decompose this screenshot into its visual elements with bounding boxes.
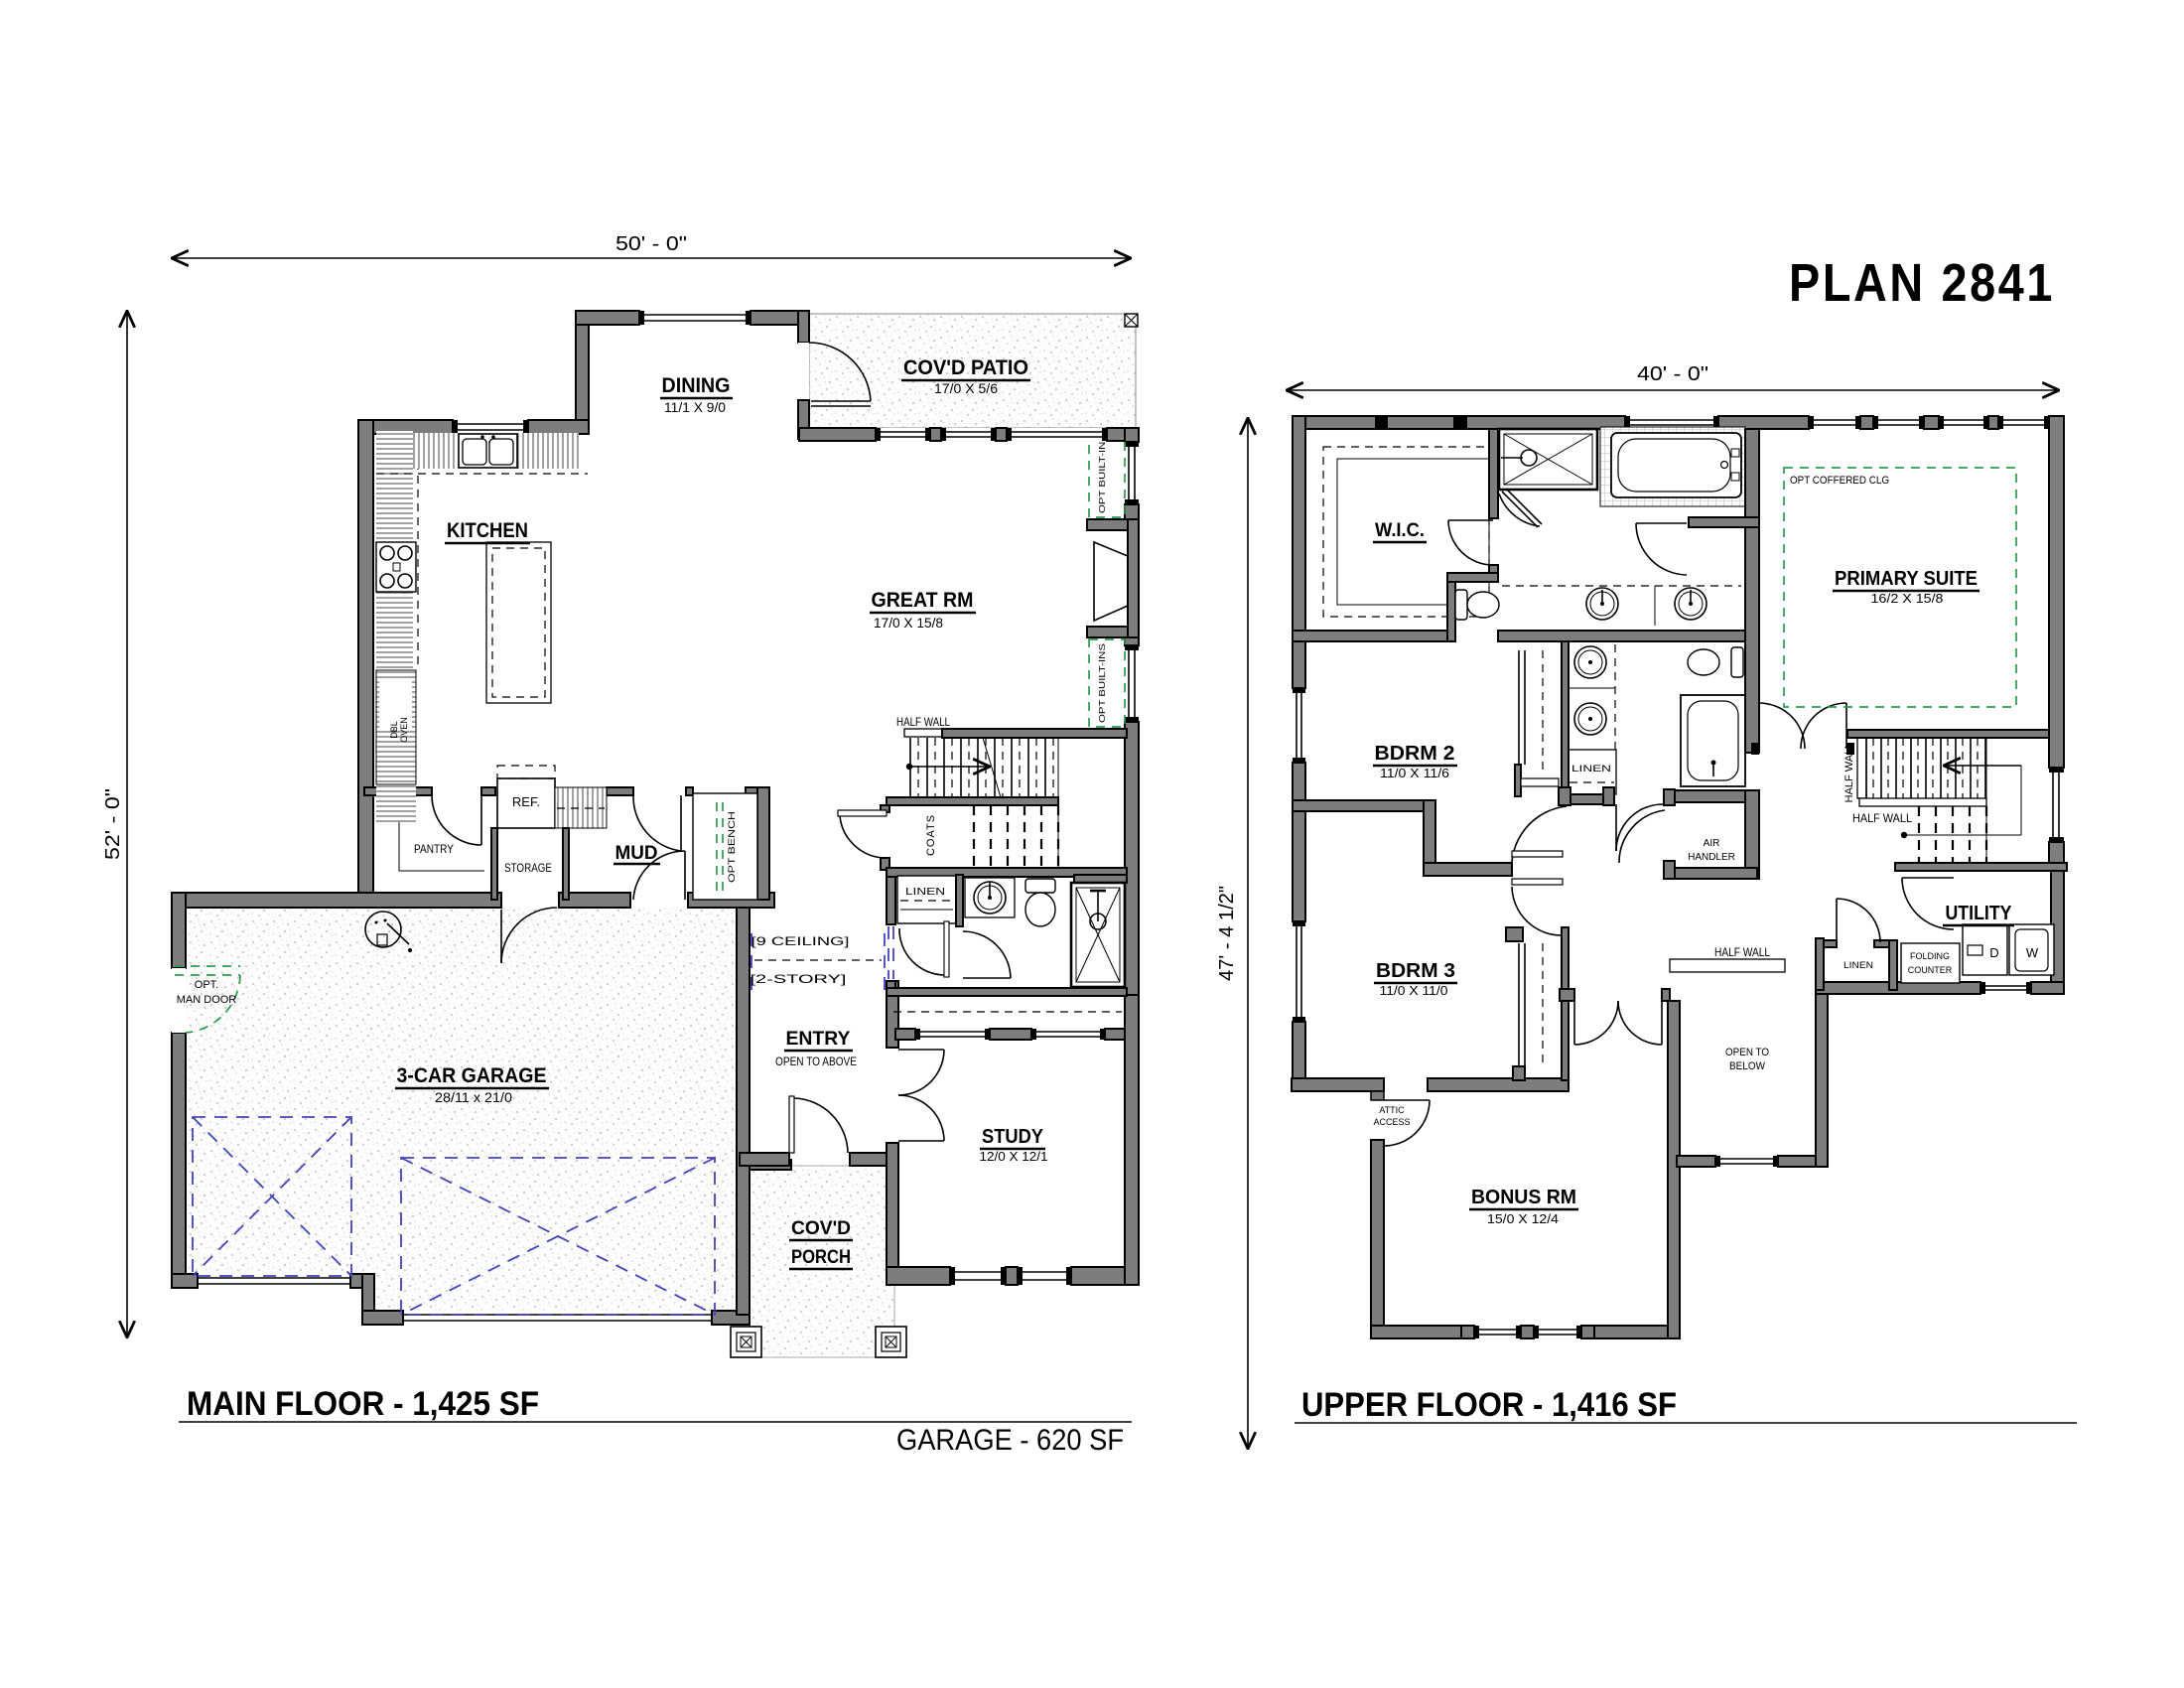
svg-text:PANTRY: PANTRY (414, 842, 454, 856)
svg-text:REF.: REF. (512, 794, 540, 809)
svg-text:OPEN TO: OPEN TO (1725, 1047, 1769, 1058)
svg-text:BELOW: BELOW (1729, 1060, 1766, 1072)
svg-text:47' - 4 1/2": 47' - 4 1/2" (1216, 886, 1238, 981)
svg-text:[9 CEILING]: [9 CEILING] (751, 934, 850, 948)
svg-text:LINEN: LINEN (905, 887, 945, 898)
svg-text:MAN DOOR: MAN DOOR (177, 994, 237, 1006)
svg-text:OPT COFFERED CLG: OPT COFFERED CLG (1790, 475, 1889, 487)
svg-text:UPPER FLOOR - 1,416 SF: UPPER FLOOR - 1,416 SF (1301, 1386, 1677, 1424)
svg-text:W: W (2026, 945, 2039, 960)
svg-text:PORCH: PORCH (791, 1247, 851, 1268)
svg-text:OVEN: OVEN (399, 717, 409, 743)
svg-text:OPT BENCH: OPT BENCH (727, 811, 737, 883)
svg-text:OPT BUILT-INS: OPT BUILT-INS (1097, 643, 1107, 723)
svg-text:FOLDING: FOLDING (1910, 951, 1950, 961)
svg-text:MAIN FLOOR - 1,425 SF: MAIN FLOOR - 1,425 SF (187, 1385, 539, 1423)
svg-text:LINEN: LINEN (1843, 960, 1873, 970)
svg-text:17/0 X 15/8: 17/0 X 15/8 (874, 615, 943, 631)
svg-text:11/0 X 11/6: 11/0 X 11/6 (1380, 766, 1449, 780)
svg-text:16/2 X 15/8: 16/2 X 15/8 (1871, 591, 1944, 606)
svg-text:W.I.C.: W.I.C. (1375, 520, 1425, 541)
svg-text:COV'D: COV'D (791, 1218, 851, 1239)
svg-text:COUNTER: COUNTER (1908, 965, 1953, 975)
svg-text:[2-STORY]: [2-STORY] (751, 972, 847, 986)
svg-text:11/0 X 11/0: 11/0 X 11/0 (1380, 983, 1448, 998)
svg-text:UTILITY: UTILITY (1946, 903, 2013, 924)
svg-text:GARAGE - 620 SF: GARAGE - 620 SF (896, 1424, 1124, 1457)
svg-text:LINEN: LINEN (1571, 764, 1611, 774)
svg-text:ENTRY: ENTRY (786, 1029, 851, 1050)
svg-text:GREAT RM: GREAT RM (872, 589, 974, 612)
svg-text:15/0 X 12/4: 15/0 X 12/4 (1487, 1211, 1559, 1226)
svg-text:17/0 X 5/6: 17/0 X 5/6 (934, 380, 998, 396)
svg-text:40' - 0": 40' - 0" (1637, 363, 1708, 385)
svg-text:MUD: MUD (615, 843, 658, 864)
svg-text:COV'D PATIO: COV'D PATIO (903, 356, 1028, 379)
svg-text:DBL: DBL (389, 721, 399, 739)
svg-text:BDRM 2: BDRM 2 (1375, 743, 1455, 765)
svg-text:OPT BUILT-INS: OPT BUILT-INS (1097, 434, 1107, 513)
svg-text:3-CAR GARAGE: 3-CAR GARAGE (397, 1064, 547, 1087)
svg-text:50' - 0": 50' - 0" (615, 233, 687, 255)
svg-text:HANDLER: HANDLER (1688, 852, 1735, 863)
svg-text:COATS: COATS (925, 814, 937, 856)
svg-text:11/1 X 9/0: 11/1 X 9/0 (664, 399, 726, 415)
svg-text:HALF WALL: HALF WALL (1852, 811, 1912, 825)
svg-text:OPEN TO ABOVE: OPEN TO ABOVE (775, 1055, 857, 1068)
svg-text:AIR: AIR (1704, 838, 1720, 849)
svg-text:BONUS RM: BONUS RM (1471, 1187, 1576, 1208)
svg-text:STORAGE: STORAGE (504, 861, 552, 875)
svg-text:STUDY: STUDY (982, 1126, 1044, 1148)
svg-text:52' - 0": 52' - 0" (102, 788, 124, 860)
svg-text:ATTIC: ATTIC (1379, 1105, 1405, 1115)
svg-text:KITCHEN: KITCHEN (447, 519, 528, 542)
svg-text:D: D (1989, 945, 1998, 960)
svg-text:BDRM 3: BDRM 3 (1376, 960, 1455, 982)
svg-text:HALF WALL: HALF WALL (896, 715, 950, 729)
svg-text:28/11 x 21/0: 28/11 x 21/0 (435, 1089, 512, 1105)
svg-text:DINING: DINING (662, 374, 731, 397)
svg-text:ACCESS: ACCESS (1373, 1117, 1410, 1127)
svg-text:PLAN 2841: PLAN 2841 (1789, 253, 2055, 313)
svg-text:12/0 X 12/1: 12/0 X 12/1 (980, 1149, 1048, 1164)
svg-text:HALF WALL: HALF WALL (1714, 945, 1770, 959)
svg-text:OPT.: OPT. (195, 979, 218, 991)
svg-text:PRIMARY SUITE: PRIMARY SUITE (1835, 568, 1978, 590)
